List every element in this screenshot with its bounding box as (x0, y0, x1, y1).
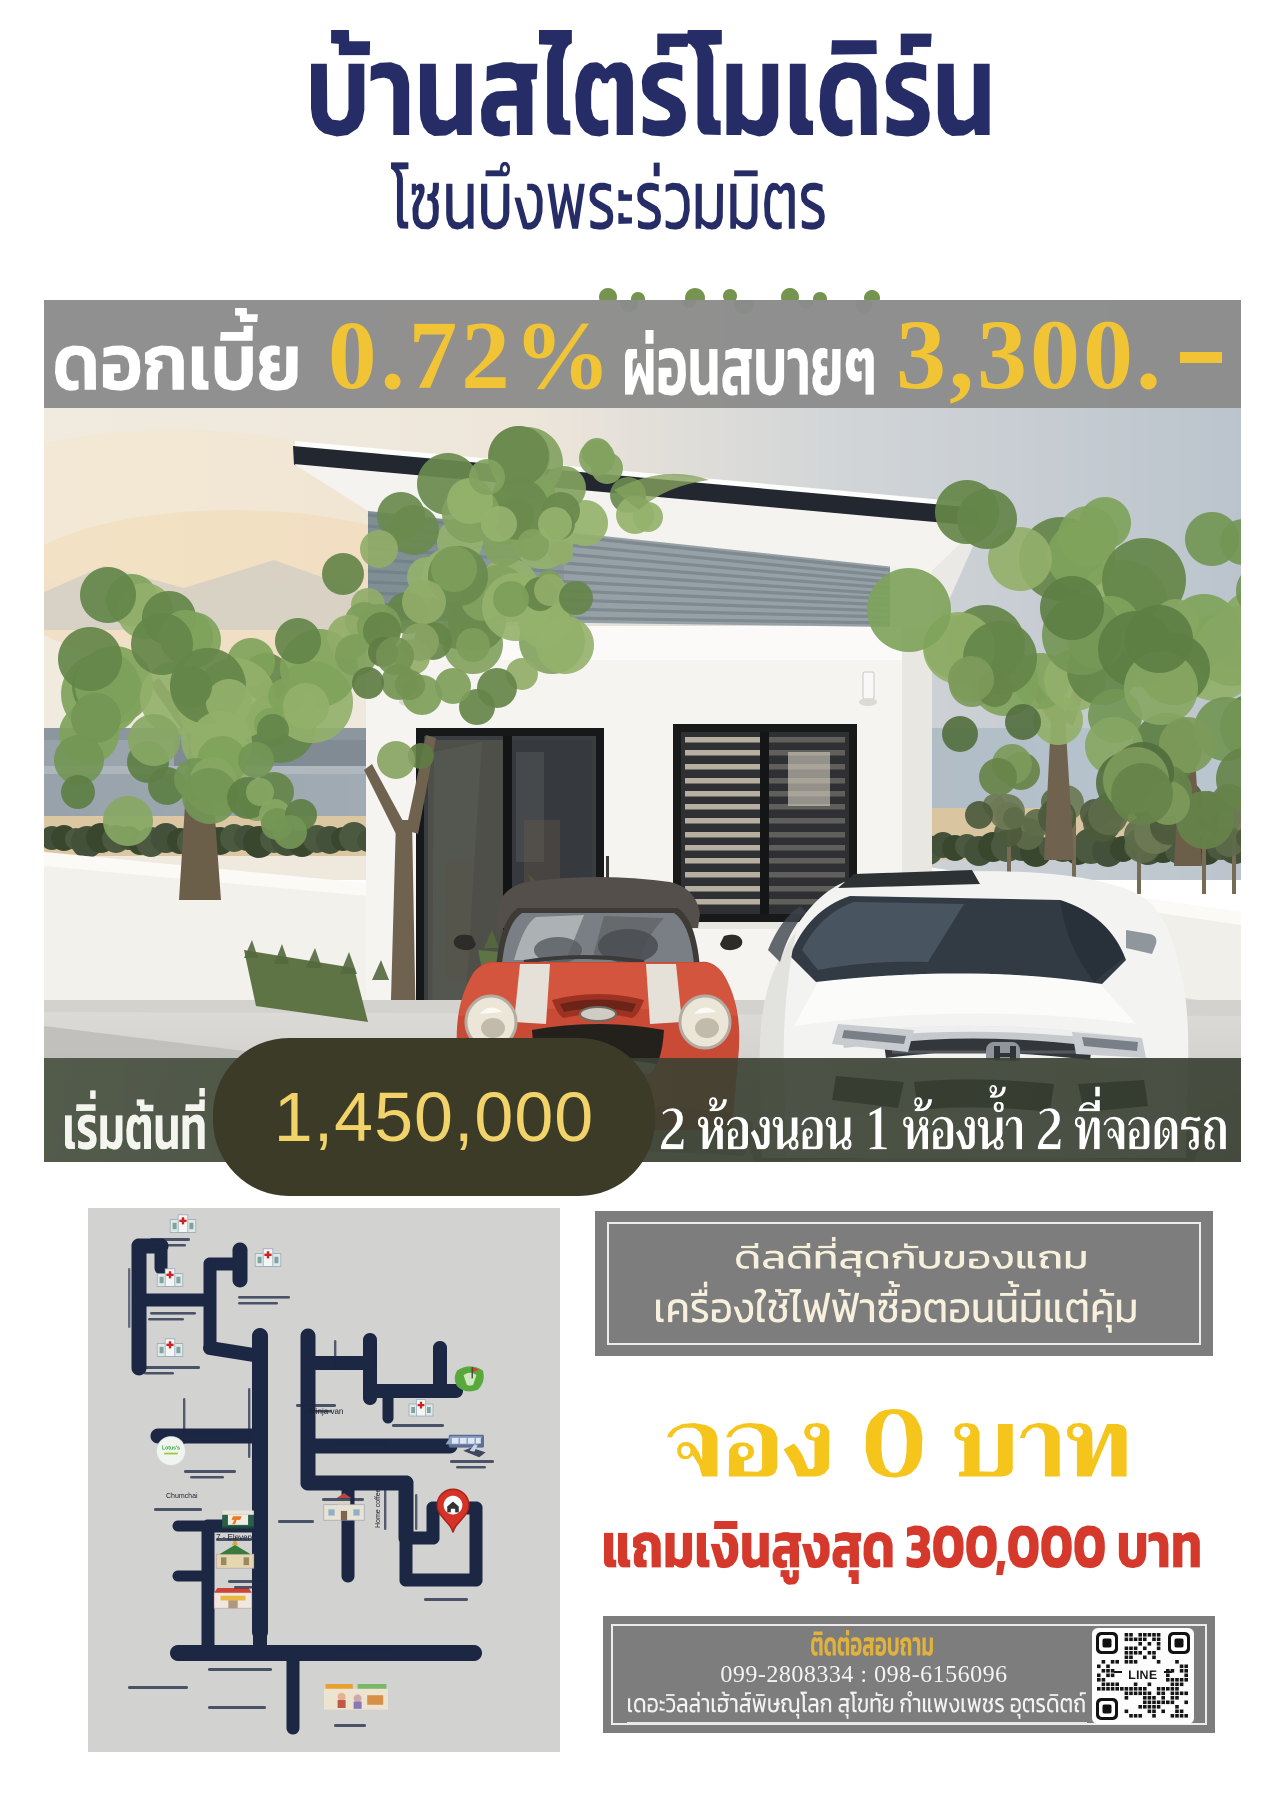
svg-text:Home coffee: Home coffee (375, 1488, 382, 1528)
svg-text:Ninja van: Ninja van (310, 1407, 343, 1416)
svg-text:Chumchai: Chumchai (166, 1493, 198, 1500)
svg-text:7 - Eleven: 7 - Eleven (216, 1533, 252, 1542)
svg-text:Lotus's: Lotus's (162, 1445, 180, 1451)
